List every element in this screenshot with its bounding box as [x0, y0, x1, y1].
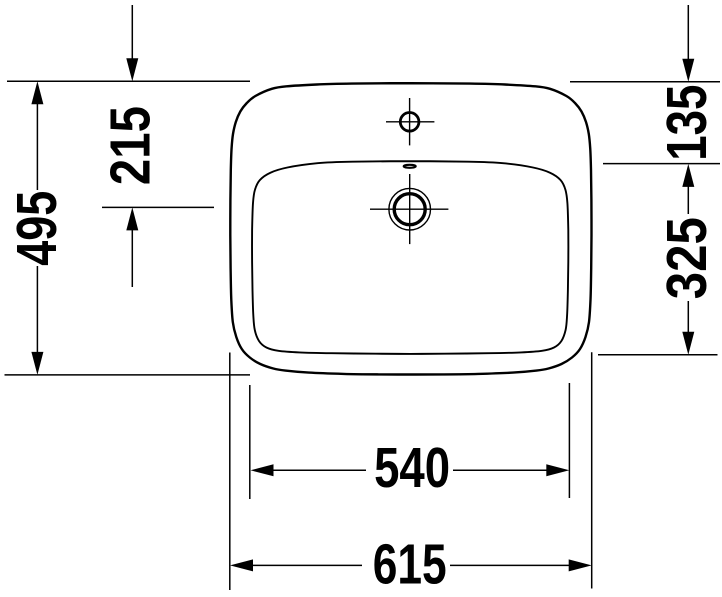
svg-text:135: 135: [655, 85, 719, 161]
svg-text:540: 540: [374, 436, 450, 500]
svg-text:495: 495: [5, 191, 69, 266]
svg-text:615: 615: [373, 532, 447, 596]
svg-text:215: 215: [98, 106, 162, 185]
svg-text:325: 325: [655, 217, 719, 299]
